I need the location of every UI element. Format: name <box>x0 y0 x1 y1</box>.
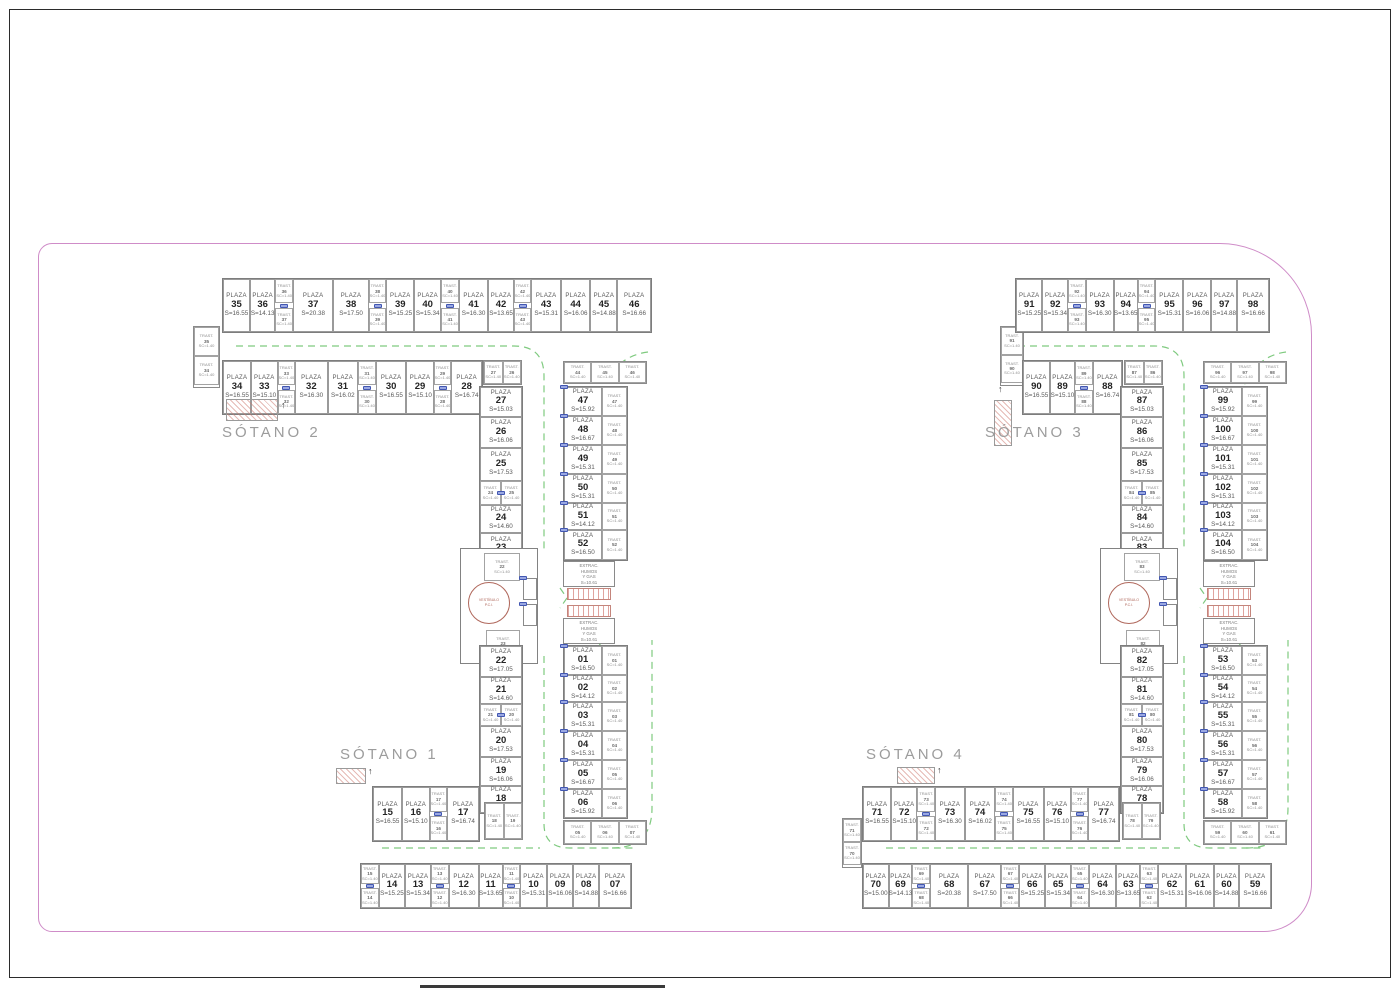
trastero-pair: TRAST.38SC=1.40TRAST.39SC=1.40 <box>369 279 387 332</box>
plaza-storage-row: PLAZA47S=15.92TRAST.47SC=1.40 <box>564 387 627 416</box>
elevator-box <box>523 604 537 626</box>
plaza-storage-row: PLAZA104S=16.50TRAST.104SC=1.40 <box>1204 530 1267 560</box>
plaza-cell-63: PLAZA63S=13.65 <box>1116 864 1140 908</box>
smoke-extractor-box: EXTRAC.HUMOSY GASS=10.61 <box>563 561 615 587</box>
door-icon <box>1006 884 1014 888</box>
trastero-box-27: TRAST.27SC=1.40 <box>484 361 503 384</box>
plaza-area: S=14.12 <box>1211 522 1235 529</box>
door-icon <box>436 884 444 888</box>
trastero-pair: TRAST.24SC=1.40TRAST.25SC=1.40 <box>480 481 522 505</box>
trastero-box-68: TRAST.68SC=1.40 <box>912 888 930 908</box>
door-icon <box>560 528 568 532</box>
trastero-box-58: TRAST.58SC=1.40 <box>1242 789 1267 818</box>
plaza-cell-103: PLAZA103S=14.12 <box>1204 503 1242 530</box>
trastero-area: SC=1.40 <box>607 548 623 553</box>
door-icon <box>922 812 930 816</box>
plaza-area: S=16.74 <box>1092 819 1116 826</box>
parking-row: PLAZA91S=15.25PLAZA92S=15.34TRAST.92SC=1… <box>1015 278 1270 333</box>
trastero-area: SC=1.40 <box>1004 344 1020 349</box>
plaza-cell-53: PLAZA53S=16.50 <box>1204 646 1242 675</box>
trastero-box-34: TRAST.34SC=1.40 <box>194 356 219 385</box>
trastero-box-51: TRAST.51SC=1.40 <box>602 503 627 530</box>
plaza-area: S=15.10 <box>408 393 432 400</box>
door-icon <box>560 501 568 505</box>
plaza-cell-54: PLAZA54S=14.12 <box>1204 675 1242 702</box>
plaza-area: S=14.60 <box>489 524 513 531</box>
trastero-pair: TRAST.42SC=1.40TRAST.43SC=1.40 <box>514 279 532 332</box>
trastero-area: SC=1.40 <box>276 322 292 327</box>
plaza-area: S=16.66 <box>1241 311 1265 318</box>
plaza-area: S=15.92 <box>1211 809 1235 816</box>
trastero-area: SC=1.40 <box>504 901 520 906</box>
trastero-box-50: TRAST.50SC=1.40 <box>602 474 627 503</box>
plaza-area: S=15.00 <box>864 891 888 898</box>
trastero-area: SC=1.40 <box>504 496 520 501</box>
plaza-area: S=14.12 <box>571 694 595 701</box>
trastero-area: SC=1.40 <box>1072 901 1088 906</box>
plaza-cell-22: PLAZA22S=17.05 <box>480 646 522 677</box>
trastero-box-03: TRAST.03SC=1.40 <box>602 702 627 731</box>
trastero-pair: TRAST.84SC=1.40TRAST.85SC=1.40 <box>1121 481 1163 505</box>
plaza-cell-26: PLAZA26S=16.06 <box>480 417 522 448</box>
trastero-area: SC=1.40 <box>1237 375 1253 380</box>
trastero-area: SC=1.40 <box>607 404 623 409</box>
plaza-cell-44: PLAZA44S=16.06 <box>561 279 591 332</box>
trastero-box-90: TRAST.90SC=1.40 <box>1001 355 1023 383</box>
plaza-area: S=14.60 <box>1130 524 1154 531</box>
trastero-box-05: TRAST.05SC=1.40 <box>602 760 627 789</box>
trastero-box-18: TRAST.18SC=1.40 <box>485 803 504 839</box>
trastero-box-77: TRAST.77SC=1.40 <box>1071 787 1089 812</box>
door-icon <box>560 700 568 704</box>
plaza-area: S=15.31 <box>571 722 595 729</box>
plaza-cell-02: PLAZA02S=14.12 <box>564 675 602 702</box>
plaza-area: S=14.60 <box>489 696 513 703</box>
door-icon <box>434 812 442 816</box>
trastero-box-64: TRAST.64SC=1.40 <box>1071 888 1089 908</box>
plaza-cell-86: PLAZA86S=16.06 <box>1121 417 1163 448</box>
door-icon <box>1138 713 1146 717</box>
plaza-cell-40: PLAZA40S=15.34 <box>414 279 441 332</box>
trastero-box-37: TRAST.37SC=1.40 <box>275 308 293 332</box>
trastero-pair: TRAST.81SC=1.40TRAST.80SC=1.40 <box>1121 704 1163 726</box>
plaza-area: S=13.65 <box>479 891 503 898</box>
door-icon <box>507 884 515 888</box>
door-icon <box>366 884 374 888</box>
fire-lobby-stamp: VESTÍBULOP.C.I. <box>1108 582 1150 624</box>
trastero-box-95: TRAST.95SC=1.40 <box>1138 308 1156 332</box>
trastero-area: SC=1.40 <box>1247 433 1263 438</box>
trastero-area: SC=1.40 <box>515 322 531 327</box>
trastero-area: SC=1.40 <box>918 802 934 807</box>
trastero-edge-pair: TRAST.71SC=1.40TRAST.70SC=1.40 <box>842 818 862 868</box>
plaza-area: S=14.88 <box>1215 891 1239 898</box>
plaza-cell-75: PLAZA75S=16.55 <box>1013 787 1044 841</box>
plaza-area: S=14.12 <box>571 522 595 529</box>
door-icon <box>282 386 290 390</box>
door-icon <box>1200 787 1208 791</box>
trastero-box-30: TRAST.30SC=1.40 <box>358 390 376 414</box>
trastero-area: SC=1.40 <box>570 375 586 380</box>
plaza-cell-45: PLAZA45S=14.88 <box>590 279 617 332</box>
door-icon <box>1076 812 1084 816</box>
door-icon <box>1200 729 1208 733</box>
trastero-area: SC=1.40 <box>370 322 386 327</box>
plaza-cell-12: PLAZA12S=16.30 <box>449 864 479 908</box>
trastero-area: SC=1.40 <box>918 831 934 836</box>
trastero-box-78: TRAST.78SC=1.40 <box>1123 803 1142 839</box>
plaza-area: S=13.65 <box>1117 891 1141 898</box>
trastero-box-41: TRAST.41SC=1.40 <box>441 308 459 332</box>
plaza-area: S=15.25 <box>380 891 404 898</box>
plaza-area: S=16.06 <box>1186 311 1210 318</box>
plaza-area: S=16.67 <box>1211 436 1235 443</box>
plaza-area: S=16.74 <box>1096 393 1120 400</box>
plaza-cell-65: PLAZA65S=15.34 <box>1045 864 1071 908</box>
plaza-area: S=14.13 <box>889 891 913 898</box>
trastero-box-45: TRAST.45SC=1.40 <box>591 362 618 383</box>
trastero-box-59: TRAST.59SC=1.40 <box>1204 821 1231 844</box>
plaza-cell-35: PLAZA35S=16.55 <box>223 279 250 332</box>
door-icon <box>1200 443 1208 447</box>
trastero-box-12: TRAST.12SC=1.40 <box>431 888 449 908</box>
trastero-area: SC=1.40 <box>1145 496 1161 501</box>
trastero-box-86: TRAST.86SC=1.40 <box>1144 361 1163 384</box>
plaza-cell-24: PLAZA24S=14.60 <box>480 505 522 533</box>
door-icon <box>560 644 568 648</box>
trastero-row: TRAST.96SC=1.40TRAST.97SC=1.40TRAST.98SC… <box>1203 361 1287 384</box>
plaza-area: S=14.88 <box>574 891 598 898</box>
plaza-cell-15: PLAZA15S=16.55 <box>373 787 402 841</box>
plaza-area: S=16.55 <box>379 393 403 400</box>
plaza-cell-11: PLAZA11S=13.65 <box>479 864 503 908</box>
trastero-box-94: TRAST.94SC=1.40 <box>1138 279 1156 303</box>
plaza-cell-92: PLAZA92S=15.34 <box>1042 279 1068 332</box>
plaza-storage-row: PLAZA02S=14.12TRAST.02SC=1.40 <box>564 675 627 702</box>
trastero-box-62: TRAST.62SC=1.40 <box>1140 888 1158 908</box>
label-sotano-1: SÓTANO 1 <box>340 746 439 763</box>
trastero-box-04: TRAST.04SC=1.40 <box>602 731 627 760</box>
trastero-area: SC=1.40 <box>1210 835 1226 840</box>
plaza-area: S=16.55 <box>1016 819 1040 826</box>
trastero-area: SC=1.40 <box>1145 718 1161 723</box>
plaza-area: S=16.06 <box>489 777 513 784</box>
trastero-box-73: TRAST.73SC=1.40 <box>917 787 935 812</box>
plaza-cell-97: PLAZA97S=14.88 <box>1211 279 1237 332</box>
plaza-area: S=15.25 <box>388 311 412 318</box>
trastero-box-54: TRAST.54SC=1.40 <box>1242 675 1267 702</box>
plaza-storage-row: PLAZA51S=14.12TRAST.51SC=1.40 <box>564 503 627 530</box>
trastero-area: SC=1.40 <box>1076 376 1092 381</box>
trastero-box-99: TRAST.99SC=1.40 <box>1242 387 1267 416</box>
trastero-area: SC=1.40 <box>1124 824 1140 829</box>
trastero-area: SC=1.40 <box>279 376 295 381</box>
trastero-area: SC=1.40 <box>359 376 375 381</box>
plaza-storage-row: PLAZA50S=15.31TRAST.50SC=1.40 <box>564 474 627 503</box>
plaza-area: S=16.06 <box>564 311 588 318</box>
plaza-cell-16: PLAZA16S=15.10 <box>402 787 429 841</box>
plaza-storage-row: PLAZA05S=16.67TRAST.05SC=1.40 <box>564 760 627 789</box>
plaza-cell-94: PLAZA94S=13.65 <box>1114 279 1138 332</box>
extractor-label-line: S=10.61 <box>1221 637 1237 643</box>
plaza-cell-69: PLAZA69S=14.13 <box>889 864 913 908</box>
door-icon <box>1200 501 1208 505</box>
trastero-area: SC=1.40 <box>199 373 215 378</box>
trastero-box-71: TRAST.71SC=1.40 <box>843 819 861 842</box>
plaza-storage-row: PLAZA103S=14.12TRAST.103SC=1.40 <box>1204 503 1267 530</box>
plaza-area: S=16.55 <box>865 819 889 826</box>
trastero-area: SC=1.40 <box>996 831 1012 836</box>
door-icon <box>446 304 454 308</box>
trastero-area: SC=1.40 <box>1124 496 1140 501</box>
trastero-area: SC=1.40 <box>1072 802 1088 807</box>
trastero-area: SC=1.40 <box>1264 835 1280 840</box>
plaza-cell-79: PLAZA79S=16.06 <box>1121 757 1163 786</box>
door-icon <box>1159 576 1167 580</box>
smoke-extractor-box: EXTRAC.HUMOSY GASS=10.61 <box>1203 618 1255 644</box>
trastero-area: SC=1.40 <box>515 294 531 299</box>
trastero-area: SC=1.40 <box>435 376 451 381</box>
door-icon <box>1200 644 1208 648</box>
elevator-box <box>1163 604 1177 626</box>
trastero-area: SC=1.40 <box>1143 824 1159 829</box>
trastero-pair: TRAST.31SC=1.40TRAST.30SC=1.40 <box>358 361 376 414</box>
trastero-area: SC=1.40 <box>607 719 623 724</box>
plaza-storage-row: PLAZA49S=15.31TRAST.49SC=1.40 <box>564 445 627 474</box>
door-icon <box>917 884 925 888</box>
plaza-cell-82: PLAZA82S=17.05 <box>1121 646 1163 677</box>
plaza-area: S=15.03 <box>489 407 513 414</box>
plaza-cell-17: PLAZA17S=16.74 <box>447 787 479 841</box>
plaza-cell-20: PLAZA20S=17.53 <box>480 726 522 757</box>
trastero-box-33: TRAST.33SC=1.40 <box>278 361 296 385</box>
trastero-area: SC=1.40 <box>442 294 458 299</box>
trastero-area: SC=1.40 <box>607 777 623 782</box>
trastero-area: SC=1.40 <box>913 877 929 882</box>
plaza-cell-74: PLAZA74S=16.02 <box>965 787 996 841</box>
trastero-box-06: TRAST.06SC=1.40 <box>602 789 627 818</box>
plaza-storage-row: PLAZA53S=16.50TRAST.53SC=1.40 <box>1204 646 1267 675</box>
trastero-pair: TRAST.94SC=1.40TRAST.95SC=1.40 <box>1138 279 1156 332</box>
trastero-area: SC=1.40 <box>504 375 520 380</box>
trastero-box-38: TRAST.38SC=1.40 <box>369 279 387 303</box>
plaza-cell-60: PLAZA60S=14.88 <box>1214 864 1240 908</box>
plaza-cell-04: PLAZA04S=15.31 <box>564 731 602 760</box>
parking-row: PLAZA70S=15.00PLAZA69S=14.13TRAST.69SC=1… <box>862 863 1272 909</box>
plaza-area: S=16.66 <box>622 311 646 318</box>
trastero-area: SC=1.40 <box>504 718 520 723</box>
plaza-cell-66: PLAZA66S=15.25 <box>1019 864 1045 908</box>
trastero-box-100: TRAST.100SC=1.40 <box>1242 416 1267 445</box>
trastero-box-07: TRAST.07SC=1.40 <box>619 821 646 844</box>
trastero-box-29: TRAST.29SC=1.40 <box>434 361 452 385</box>
trastero-area: SC=1.40 <box>1141 877 1157 882</box>
plaza-cell-91: PLAZA91S=15.25 <box>1016 279 1042 332</box>
plaza-cell-01: PLAZA01S=16.50 <box>564 646 602 675</box>
plaza-area: S=16.50 <box>1211 550 1235 557</box>
plaza-cell-08: PLAZA08S=14.88 <box>573 864 599 908</box>
plaza-cell-80: PLAZA80S=17.53 <box>1121 726 1163 757</box>
trastero-pair: TRAST.15SC=1.40TRAST.14SC=1.40 <box>361 864 379 908</box>
trastero-area: SC=1.40 <box>1076 404 1092 409</box>
trastero-row: TRAST.44SC=1.40TRAST.45SC=1.40TRAST.46SC… <box>563 361 647 384</box>
plaza-area: S=16.30 <box>462 311 486 318</box>
plaza-cell-47: PLAZA47S=15.92 <box>564 387 602 416</box>
door-icon <box>1200 528 1208 532</box>
trastero-area: SC=1.40 <box>607 691 623 696</box>
plaza-area: S=20.38 <box>301 311 325 318</box>
plaza-area: S=15.34 <box>416 311 440 318</box>
trastero-area: SC=1.40 <box>624 835 640 840</box>
trastero-box-97: TRAST.97SC=1.40 <box>1231 362 1258 383</box>
trastero-pair: TRAST.77SC=1.40TRAST.76SC=1.40 <box>1071 787 1089 841</box>
plaza-area: S=15.10 <box>1045 819 1069 826</box>
plaza-area: S=16.50 <box>1211 666 1235 673</box>
ramp-hatch <box>567 605 611 617</box>
plaza-area: S=15.03 <box>1130 407 1154 414</box>
trastero-box-102: TRAST.102SC=1.40 <box>1242 474 1267 503</box>
trastero-area: SC=1.40 <box>1247 748 1263 753</box>
plaza-storage-row: PLAZA102S=15.31TRAST.102SC=1.40 <box>1204 474 1267 503</box>
plaza-cell-76: PLAZA76S=15.10 <box>1044 787 1071 841</box>
door-icon <box>1000 812 1008 816</box>
parking-column-with-storage: PLAZA99S=15.92TRAST.99SC=1.40PLAZA100S=1… <box>1203 386 1268 561</box>
trastero-box-14: TRAST.14SC=1.40 <box>361 888 379 908</box>
plaza-area: S=15.10 <box>892 819 916 826</box>
trastero-area: SC=1.40 <box>442 322 458 327</box>
trastero-pair: TRAST.65SC=1.40TRAST.64SC=1.40 <box>1071 864 1089 908</box>
trastero-area: SC=1.40 <box>607 462 623 467</box>
door-icon <box>1200 414 1208 418</box>
trastero-pair: TRAST.11SC=1.40TRAST.10SC=1.40 <box>503 864 521 908</box>
plaza-cell-64: PLAZA64S=16.30 <box>1089 864 1117 908</box>
plaza-area: S=15.10 <box>1051 393 1075 400</box>
plaza-area: S=13.65 <box>489 311 513 318</box>
trastero-box-60: TRAST.60SC=1.40 <box>1231 821 1258 844</box>
trastero-area: SC=1.40 <box>1247 719 1263 724</box>
plaza-cell-50: PLAZA50S=15.31 <box>564 474 602 503</box>
trastero-area: SC=1.40 <box>844 856 860 861</box>
door-icon <box>374 304 382 308</box>
plaza-area: S=15.31 <box>571 465 595 472</box>
trastero-pair: TRAST.73SC=1.40TRAST.72SC=1.40 <box>917 787 935 841</box>
door-icon <box>519 576 527 580</box>
stamp-text-line: P.C.I. <box>485 603 494 608</box>
plaza-area: S=16.06 <box>1188 891 1212 898</box>
trastero-pair: TRAST.74SC=1.40TRAST.75SC=1.40 <box>995 787 1013 841</box>
trastero-box-35: TRAST.35SC=1.40 <box>194 327 219 356</box>
trastero-area: SC=1.40 <box>607 663 623 668</box>
parking-row: PLAZA90S=16.55PLAZA89S=15.10TRAST.89SC=1… <box>1022 360 1123 415</box>
parking-row: PLAZA71S=16.55PLAZA72S=15.10TRAST.73SC=1… <box>862 786 1120 842</box>
stair-hatch <box>897 767 935 784</box>
trastero-area: SC=1.40 <box>913 901 929 906</box>
plaza-cell-48: PLAZA48S=16.67 <box>564 416 602 445</box>
plaza-area: S=16.02 <box>331 393 355 400</box>
plaza-area: S=16.30 <box>938 819 962 826</box>
plaza-cell-42: PLAZA42S=13.65 <box>488 279 513 332</box>
trastero-area: SC=1.40 <box>1210 375 1226 380</box>
plaza-cell-68: PLAZA68S=20.38 <box>930 864 968 908</box>
plaza-cell-100: PLAZA100S=16.67 <box>1204 416 1242 445</box>
trastero-pair: TRAST.36SC=1.40TRAST.37SC=1.40 <box>275 279 293 332</box>
plaza-cell-46: PLAZA46S=16.66 <box>617 279 651 332</box>
plaza-cell-30: PLAZA30S=16.55 <box>376 361 407 414</box>
trastero-area: SC=1.40 <box>1069 294 1085 299</box>
plaza-area: S=15.31 <box>571 751 595 758</box>
parking-row: TRAST.15SC=1.40TRAST.14SC=1.40PLAZA14S=1… <box>360 863 632 909</box>
trastero-box-16: TRAST.16SC=1.40 <box>430 816 448 841</box>
door-icon <box>1145 884 1153 888</box>
ramp-hatch <box>1207 605 1251 617</box>
plaza-cell-55: PLAZA55S=15.31 <box>1204 702 1242 731</box>
plaza-area: S=16.67 <box>571 436 595 443</box>
plaza-cell-73: PLAZA73S=16.30 <box>935 787 965 841</box>
door-icon <box>1076 884 1084 888</box>
door-icon <box>1080 386 1088 390</box>
plaza-storage-row: PLAZA48S=16.67TRAST.48SC=1.40 <box>564 416 627 445</box>
trastero-box-42: TRAST.42SC=1.40 <box>514 279 532 303</box>
door-icon <box>519 304 527 308</box>
door-icon <box>560 673 568 677</box>
plaza-area: S=15.31 <box>1211 751 1235 758</box>
plaza-area: S=16.50 <box>571 666 595 673</box>
plaza-cell-38: PLAZA38S=17.50 <box>333 279 368 332</box>
up-arrow-icon: ↑ <box>937 766 942 775</box>
plaza-cell-49: PLAZA49S=15.31 <box>564 445 602 474</box>
door-icon <box>560 385 568 389</box>
trastero-box-47: TRAST.47SC=1.40 <box>602 387 627 416</box>
trastero-area: SC=1.40 <box>1237 835 1253 840</box>
plaza-area: S=15.34 <box>1043 311 1067 318</box>
trastero-area: SC=1.40 <box>504 877 520 882</box>
trastero-area: SC=1.40 <box>607 519 623 524</box>
trastero-box-66: TRAST.66SC=1.40 <box>1001 888 1019 908</box>
door-icon <box>1200 673 1208 677</box>
plaza-cell-90: PLAZA90S=16.55 <box>1023 361 1050 414</box>
label-sotano-4: SÓTANO 4 <box>866 746 965 763</box>
door-icon <box>497 713 505 717</box>
trastero-area: SC=1.40 <box>1264 375 1280 380</box>
trastero-box-31: TRAST.31SC=1.40 <box>358 361 376 385</box>
plaza-area: S=15.92 <box>571 407 595 414</box>
trastero-area: SC=1.40 <box>359 404 375 409</box>
extractor-label-line: S=10.61 <box>581 637 597 643</box>
extractor-label-line: S=10.61 <box>1221 580 1237 586</box>
plaza-area: S=16.06 <box>548 891 572 898</box>
trastero-box-79: TRAST.79SC=1.40 <box>1142 803 1161 839</box>
plaza-cell-77: PLAZA77S=16.74 <box>1088 787 1119 841</box>
parking-column-with-storage: PLAZA47S=15.92TRAST.47SC=1.40PLAZA48S=16… <box>563 386 628 561</box>
trastero-area: SC=1.40 <box>844 833 860 838</box>
trastero-area: SC=1.40 <box>607 491 623 496</box>
trastero-area: SC=1.40 <box>483 496 499 501</box>
door-icon <box>280 304 288 308</box>
plaza-area: S=16.02 <box>968 819 992 826</box>
trastero-area: SC=1.40 <box>494 570 510 575</box>
parking-column-with-storage: PLAZA53S=16.50TRAST.53SC=1.40PLAZA54S=14… <box>1203 645 1268 819</box>
up-arrow-icon: ↑ <box>998 385 1003 394</box>
trastero-box-70: TRAST.70SC=1.40 <box>843 842 861 865</box>
plaza-area: S=14.88 <box>592 311 616 318</box>
smoke-extractor-box: EXTRAC.HUMOSY GASS=10.61 <box>1203 561 1255 587</box>
trastero-box-69: TRAST.69SC=1.40 <box>912 864 930 884</box>
plaza-cell-27: PLAZA27S=15.03 <box>480 387 522 417</box>
plaza-area: S=17.05 <box>1130 667 1154 674</box>
plaza-area: S=15.31 <box>1160 891 1184 898</box>
plaza-area: S=17.53 <box>1130 470 1154 477</box>
trastero-area: SC=1.40 <box>1139 322 1155 327</box>
